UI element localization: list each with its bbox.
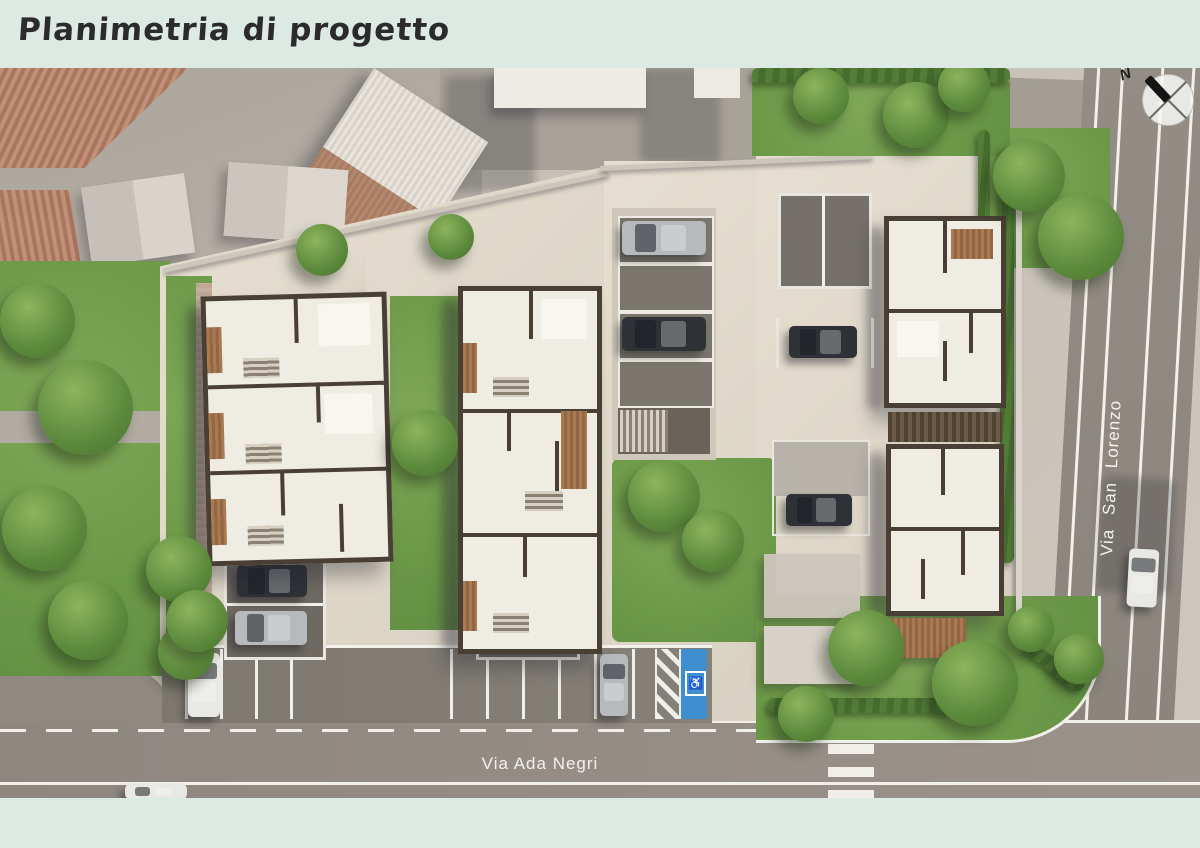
roof-terrace <box>324 393 373 434</box>
tree <box>1054 634 1104 684</box>
canopy-roof <box>774 442 868 496</box>
unit-wall <box>208 381 384 390</box>
wall-stub <box>969 309 973 353</box>
center-dashed-line <box>0 729 860 732</box>
wall-stub <box>523 533 527 577</box>
wall-stub <box>555 441 559 491</box>
page-title: Planimetria di progetto <box>17 12 452 48</box>
road-label-ada-negri: Via Ada Negri <box>430 754 650 774</box>
stairs <box>525 491 563 511</box>
wood-deck <box>463 343 477 393</box>
stall-separator <box>227 603 323 606</box>
building-shadow <box>868 452 884 612</box>
tree <box>428 214 474 260</box>
tree <box>2 486 87 571</box>
wood-deck <box>211 499 227 545</box>
stall-line <box>632 649 635 719</box>
car-partial-bottom <box>125 784 187 798</box>
slide: Planimetria di progetto Via San Lorenzo <box>0 0 1200 848</box>
white-roof-building <box>694 68 740 98</box>
car-parked <box>235 611 307 645</box>
townhouse-row-middle <box>458 286 602 654</box>
wall-stub <box>943 221 947 273</box>
tree <box>1008 606 1054 652</box>
tree <box>793 68 849 124</box>
carport-canopy <box>772 440 870 536</box>
white-roof-building <box>494 68 646 108</box>
car-parked <box>786 494 852 526</box>
wall-stub <box>943 341 947 381</box>
car-driving <box>1126 548 1159 608</box>
compass <box>1142 74 1194 126</box>
stairs <box>245 443 282 464</box>
carport-twin <box>778 193 872 289</box>
wood-deck <box>463 581 477 631</box>
central-parking <box>612 208 716 460</box>
building-shadow <box>442 300 458 648</box>
pergola-slats <box>888 412 1002 442</box>
parking-stall <box>618 264 714 312</box>
tree <box>778 686 834 742</box>
wall-stub <box>294 299 299 343</box>
townhouse-row-west <box>200 292 393 567</box>
stairs <box>243 357 280 378</box>
tree <box>0 283 75 358</box>
tree <box>392 410 458 476</box>
shed-roof <box>81 173 195 267</box>
no-parking-hatch <box>655 649 681 719</box>
open-stall <box>776 318 874 368</box>
roof-terrace <box>897 321 939 357</box>
house-east-south <box>886 444 1004 616</box>
roof-terrace <box>318 303 371 346</box>
wall-along-road <box>1016 146 1022 624</box>
garage-stalls-west <box>224 554 326 660</box>
wall-stub <box>941 449 945 495</box>
wall-stub <box>529 291 533 339</box>
wood-deck <box>206 327 222 373</box>
lane-line <box>1153 68 1195 771</box>
tree <box>166 590 228 652</box>
wall-stub <box>316 382 321 422</box>
unit-wall <box>463 533 597 537</box>
stall-line <box>220 649 223 719</box>
tree <box>48 580 128 660</box>
tree <box>682 510 744 572</box>
wheelchair-icon: ♿ <box>685 671 706 696</box>
wall-stub <box>507 409 511 451</box>
car-parked <box>237 565 307 597</box>
wall-stub <box>280 469 285 515</box>
car-parked <box>600 654 628 716</box>
pergola-light <box>764 554 860 618</box>
tree <box>993 140 1065 212</box>
wood-deck <box>951 229 993 259</box>
site-plan-render: Via San Lorenzo Via Ada Negri <box>0 68 1200 798</box>
tree <box>296 224 348 276</box>
wood-deck <box>209 413 225 459</box>
stall-separator <box>822 196 825 286</box>
stairs <box>248 525 285 546</box>
stall-line <box>450 649 453 719</box>
tree <box>1038 194 1124 280</box>
tree <box>38 360 133 455</box>
car-parked <box>622 317 706 351</box>
car-parked <box>789 326 857 358</box>
stairs <box>493 377 529 397</box>
unit-wall <box>891 527 999 531</box>
crosswalk <box>828 744 874 798</box>
house-east-north <box>884 216 1006 408</box>
accessible-stall: ♿ <box>681 649 707 719</box>
stairs <box>493 613 529 633</box>
stall-line <box>594 649 597 719</box>
tree <box>828 610 904 686</box>
wall-stub <box>921 559 925 599</box>
parking-stall <box>618 360 714 408</box>
unit-wall <box>210 467 386 476</box>
wall-stub <box>961 527 965 575</box>
wall-stub <box>339 504 344 552</box>
unit-wall <box>889 309 1001 313</box>
tree <box>932 640 1018 726</box>
car-parked <box>622 221 706 255</box>
stairs <box>620 410 668 452</box>
wood-deck <box>561 411 587 489</box>
compass-needle <box>1144 75 1171 103</box>
roof-terrace <box>541 299 587 339</box>
